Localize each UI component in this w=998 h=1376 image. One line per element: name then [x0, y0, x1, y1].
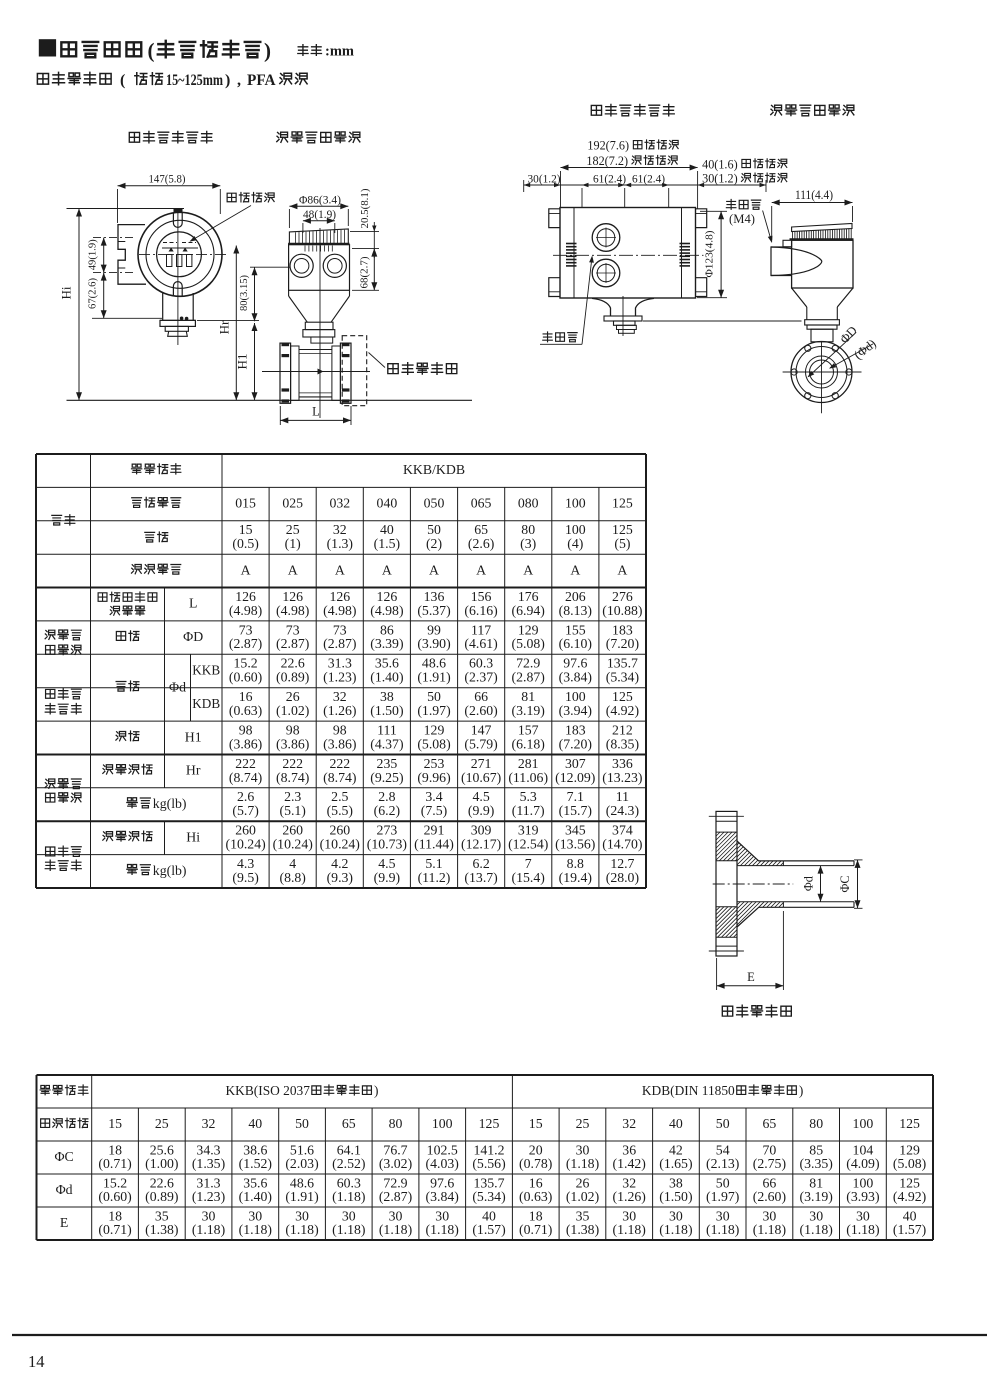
- svg-text:(9.96): (9.96): [417, 770, 450, 786]
- svg-text:61(2.4): 61(2.4): [632, 174, 665, 186]
- svg-text:(0.60): (0.60): [229, 670, 262, 686]
- svg-text:(3.86): (3.86): [276, 736, 309, 752]
- svg-text:(1.50): (1.50): [659, 1189, 692, 1205]
- svg-text:40(1.6): 40(1.6): [702, 157, 738, 171]
- svg-text:136: 136: [424, 589, 445, 604]
- svg-text:(1.26): (1.26): [323, 703, 356, 719]
- svg-text:(4.92): (4.92): [606, 703, 639, 719]
- svg-text:125: 125: [899, 1175, 920, 1190]
- svg-text:(8.74): (8.74): [323, 770, 356, 786]
- svg-text:(0.60): (0.60): [98, 1189, 131, 1205]
- svg-text:73: 73: [286, 622, 300, 637]
- svg-text:4: 4: [289, 856, 296, 871]
- svg-text:(11.06): (11.06): [508, 770, 548, 786]
- svg-text:100: 100: [565, 496, 586, 511]
- svg-text:(1.65): (1.65): [659, 1156, 692, 1172]
- svg-text:(10.67): (10.67): [461, 770, 501, 786]
- svg-text:(1.00): (1.00): [145, 1156, 178, 1172]
- svg-text:222: 222: [329, 756, 350, 771]
- svg-text:(7.5): (7.5): [421, 803, 447, 819]
- svg-text:30: 30: [202, 1208, 216, 1223]
- svg-text:22.6: 22.6: [281, 656, 305, 671]
- svg-text:129: 129: [518, 622, 539, 637]
- svg-text:Hi: Hi: [59, 286, 74, 299]
- svg-text:30: 30: [622, 1208, 636, 1223]
- svg-text:32: 32: [333, 522, 347, 537]
- svg-text:(19.4): (19.4): [559, 870, 592, 886]
- svg-text:97.6: 97.6: [563, 656, 587, 671]
- svg-text:L: L: [312, 405, 320, 419]
- svg-text:(24.3): (24.3): [606, 803, 639, 819]
- svg-text:54: 54: [716, 1142, 730, 1157]
- svg-text:(5.79): (5.79): [464, 736, 497, 752]
- svg-text:25.6: 25.6: [150, 1142, 174, 1157]
- svg-text:65: 65: [474, 522, 488, 537]
- svg-text:102.5: 102.5: [427, 1142, 458, 1157]
- svg-text:18: 18: [108, 1142, 122, 1157]
- svg-text:(13.7): (13.7): [464, 870, 497, 886]
- svg-text:20.5(8.1): 20.5(8.1): [359, 188, 371, 228]
- svg-text:99: 99: [427, 622, 441, 637]
- svg-text:KDB(DIN 11850: KDB(DIN 11850: [642, 1083, 735, 1098]
- svg-text:(4.03): (4.03): [426, 1156, 459, 1172]
- svg-text:60.3: 60.3: [337, 1175, 361, 1190]
- svg-text:15: 15: [108, 1116, 122, 1131]
- svg-text:(3.86): (3.86): [323, 736, 356, 752]
- svg-text:050: 050: [424, 496, 445, 511]
- svg-text:(1.35): (1.35): [192, 1156, 225, 1172]
- svg-text:(0.89): (0.89): [145, 1189, 178, 1205]
- svg-text:(8.8): (8.8): [279, 870, 305, 886]
- svg-text:50: 50: [427, 522, 441, 537]
- svg-text:Φ86(3.4): Φ86(3.4): [299, 193, 341, 207]
- svg-text:(1.02): (1.02): [566, 1189, 599, 1205]
- svg-text:A: A: [241, 562, 251, 577]
- svg-text:(10.24): (10.24): [320, 837, 360, 853]
- svg-text:73: 73: [239, 622, 253, 637]
- svg-text:155: 155: [565, 622, 586, 637]
- svg-text:(9.5): (9.5): [232, 870, 258, 886]
- svg-text:125: 125: [612, 689, 633, 704]
- svg-text:15.2: 15.2: [234, 656, 258, 671]
- svg-text:98: 98: [239, 723, 253, 738]
- svg-text:80: 80: [809, 1116, 823, 1131]
- svg-text:111(4.4): 111(4.4): [795, 188, 833, 202]
- svg-text:(5.1): (5.1): [279, 803, 305, 819]
- svg-text:(10.24): (10.24): [273, 837, 313, 853]
- svg-text:(4.61): (4.61): [464, 636, 497, 652]
- svg-text:ΦC: ΦC: [54, 1149, 73, 1164]
- svg-text:125: 125: [612, 522, 633, 537]
- svg-text:4.2: 4.2: [331, 856, 348, 871]
- svg-text:(5.08): (5.08): [893, 1156, 926, 1172]
- svg-text:48.6: 48.6: [290, 1175, 314, 1190]
- svg-text:(1.57): (1.57): [472, 1222, 505, 1238]
- svg-text:50: 50: [295, 1116, 309, 1131]
- svg-text:32: 32: [622, 1175, 636, 1190]
- svg-text:30(1.2): 30(1.2): [702, 172, 738, 186]
- svg-text:(1.3): (1.3): [327, 536, 353, 552]
- svg-text:260: 260: [235, 823, 256, 838]
- svg-text:KDB: KDB: [192, 696, 220, 711]
- svg-text:025: 025: [282, 496, 303, 511]
- svg-text:(0.71): (0.71): [519, 1222, 552, 1238]
- svg-text:(5.7): (5.7): [232, 803, 258, 819]
- svg-text:(0.78): (0.78): [519, 1156, 552, 1172]
- svg-text:31.3: 31.3: [196, 1175, 220, 1190]
- svg-text:2.6: 2.6: [237, 789, 254, 804]
- svg-text:2.5: 2.5: [331, 789, 348, 804]
- svg-text:(2.37): (2.37): [464, 670, 497, 686]
- svg-text:A: A: [617, 562, 627, 577]
- svg-text:A: A: [382, 562, 392, 577]
- svg-text:147: 147: [471, 723, 492, 738]
- svg-text:Hr: Hr: [217, 320, 232, 334]
- svg-text:): ): [264, 39, 271, 63]
- svg-text:126: 126: [235, 589, 256, 604]
- svg-text:A: A: [570, 562, 580, 577]
- svg-text:80(3.15): 80(3.15): [238, 275, 250, 311]
- svg-text:(12.09): (12.09): [555, 770, 595, 786]
- svg-text:5.3: 5.3: [520, 789, 537, 804]
- svg-text:100: 100: [853, 1175, 874, 1190]
- svg-text:98: 98: [286, 723, 300, 738]
- svg-text:kg(lb): kg(lb): [153, 863, 187, 879]
- svg-text:(8.35): (8.35): [606, 736, 639, 752]
- svg-text:182(7.2): 182(7.2): [586, 154, 628, 168]
- svg-text:36: 36: [622, 1142, 636, 1157]
- svg-text:176: 176: [518, 589, 539, 604]
- svg-text:32: 32: [622, 1116, 636, 1131]
- svg-text:(2.03): (2.03): [285, 1156, 318, 1172]
- svg-text:212: 212: [612, 723, 633, 738]
- svg-text:111: 111: [377, 723, 397, 738]
- svg-text:(1.38): (1.38): [566, 1222, 599, 1238]
- svg-text:Φd: Φd: [801, 876, 815, 891]
- svg-text:183: 183: [565, 723, 586, 738]
- svg-text:(5.5): (5.5): [327, 803, 353, 819]
- svg-text:14: 14: [28, 1352, 45, 1371]
- svg-text:11: 11: [616, 789, 629, 804]
- svg-text:(4.98): (4.98): [229, 603, 262, 619]
- svg-text:A: A: [476, 562, 486, 577]
- svg-text:(1.18): (1.18): [659, 1222, 692, 1238]
- svg-text:(1.18): (1.18): [800, 1222, 833, 1238]
- svg-text:260: 260: [329, 823, 350, 838]
- svg-text:48.6: 48.6: [422, 656, 446, 671]
- svg-text:(0.71): (0.71): [98, 1222, 131, 1238]
- svg-text:319: 319: [518, 823, 539, 838]
- svg-text:65: 65: [763, 1116, 777, 1131]
- svg-text:81: 81: [521, 689, 535, 704]
- svg-text:(1.18): (1.18): [753, 1222, 786, 1238]
- svg-text:(6.18): (6.18): [512, 736, 545, 752]
- svg-text:(6.2): (6.2): [374, 803, 400, 819]
- svg-text:30: 30: [763, 1208, 777, 1223]
- svg-text:(10.88): (10.88): [602, 603, 642, 619]
- svg-text:4.5: 4.5: [378, 856, 395, 871]
- svg-text:72.9: 72.9: [516, 656, 540, 671]
- svg-text:(1.40): (1.40): [239, 1189, 272, 1205]
- svg-text:135.7: 135.7: [473, 1175, 504, 1190]
- svg-text:(4.98): (4.98): [276, 603, 309, 619]
- svg-text:(14.70): (14.70): [602, 837, 642, 853]
- svg-text:(10.24): (10.24): [225, 837, 265, 853]
- svg-text:72.9: 72.9: [383, 1175, 407, 1190]
- svg-text:100: 100: [432, 1116, 453, 1131]
- svg-text:281: 281: [518, 756, 539, 771]
- svg-text:(1.91): (1.91): [417, 670, 450, 686]
- svg-text:68(2.7): 68(2.7): [359, 256, 371, 288]
- svg-text:64.1: 64.1: [337, 1142, 361, 1157]
- svg-text:(1.50): (1.50): [370, 703, 403, 719]
- svg-text:(3.19): (3.19): [800, 1189, 833, 1205]
- svg-text:40: 40: [903, 1208, 917, 1223]
- svg-text:25: 25: [576, 1116, 590, 1131]
- svg-text:98: 98: [333, 723, 347, 738]
- svg-text:30: 30: [248, 1208, 262, 1223]
- svg-text:125: 125: [612, 496, 633, 511]
- svg-text:(9.3): (9.3): [327, 870, 353, 886]
- svg-text:222: 222: [282, 756, 303, 771]
- svg-text:ΦC: ΦC: [838, 875, 852, 892]
- svg-text:(2.87): (2.87): [323, 636, 356, 652]
- svg-text:(3.19): (3.19): [512, 703, 545, 719]
- svg-text:125: 125: [479, 1116, 500, 1131]
- svg-text:374: 374: [612, 823, 633, 838]
- svg-text:(13.56): (13.56): [555, 837, 595, 853]
- svg-text:(0.5): (0.5): [232, 536, 258, 552]
- svg-text:76.7: 76.7: [383, 1142, 407, 1157]
- svg-text:): ): [225, 72, 230, 89]
- svg-text:(5.34): (5.34): [472, 1189, 505, 1205]
- svg-text:kg(lb): kg(lb): [153, 796, 187, 812]
- svg-text:38.6: 38.6: [243, 1142, 267, 1157]
- svg-text:345: 345: [565, 823, 586, 838]
- svg-text:129: 129: [899, 1142, 920, 1157]
- svg-text:(3): (3): [520, 536, 536, 552]
- svg-text:(3.84): (3.84): [559, 670, 592, 686]
- svg-text:81: 81: [809, 1175, 823, 1190]
- svg-text:): ): [799, 1083, 803, 1098]
- svg-text:276: 276: [612, 589, 633, 604]
- svg-text:30: 30: [435, 1208, 449, 1223]
- svg-text:(1.18): (1.18): [379, 1222, 412, 1238]
- svg-text:(0.63): (0.63): [229, 703, 262, 719]
- svg-text:(2.6): (2.6): [468, 536, 494, 552]
- svg-text:4.5: 4.5: [472, 789, 489, 804]
- svg-text:25: 25: [155, 1116, 169, 1131]
- svg-text:30: 30: [809, 1208, 823, 1223]
- svg-text:42: 42: [669, 1142, 683, 1157]
- svg-text:(5.08): (5.08): [417, 736, 450, 752]
- svg-text:KKB: KKB: [192, 663, 220, 678]
- svg-text:(2.60): (2.60): [753, 1189, 786, 1205]
- svg-text:(4.98): (4.98): [323, 603, 356, 619]
- svg-text:(2.13): (2.13): [706, 1156, 739, 1172]
- svg-text:080: 080: [518, 496, 539, 511]
- svg-text:(7.20): (7.20): [559, 736, 592, 752]
- svg-text:18: 18: [108, 1208, 122, 1223]
- svg-text:(1.02): (1.02): [276, 703, 309, 719]
- svg-text:129: 129: [424, 723, 445, 738]
- svg-text:3.4: 3.4: [425, 789, 442, 804]
- svg-text:38: 38: [669, 1175, 683, 1190]
- svg-text:126: 126: [377, 589, 398, 604]
- svg-text:(5.37): (5.37): [417, 603, 450, 619]
- svg-text:6.2: 6.2: [472, 856, 489, 871]
- svg-text:291: 291: [424, 823, 445, 838]
- svg-text:(6.16): (6.16): [464, 603, 497, 619]
- svg-text:E: E: [60, 1215, 68, 1230]
- svg-text:): ): [374, 1083, 378, 1098]
- svg-text:(4.09): (4.09): [846, 1156, 879, 1172]
- svg-text:PFA: PFA: [247, 72, 276, 89]
- svg-text:38: 38: [380, 689, 394, 704]
- svg-text:50: 50: [427, 689, 441, 704]
- svg-text:20: 20: [529, 1142, 543, 1157]
- svg-text:25: 25: [286, 522, 300, 537]
- svg-text:(3.02): (3.02): [379, 1156, 412, 1172]
- svg-text:30: 30: [576, 1142, 590, 1157]
- svg-text:A: A: [335, 562, 345, 577]
- svg-text:5.1: 5.1: [425, 856, 442, 871]
- svg-text:15~125mm: 15~125mm: [166, 72, 223, 89]
- svg-text:(6.94): (6.94): [512, 603, 545, 619]
- svg-text:66: 66: [763, 1175, 777, 1190]
- svg-text:(9.9): (9.9): [468, 803, 494, 819]
- svg-text:(: (: [120, 72, 125, 89]
- svg-text:307: 307: [565, 756, 586, 771]
- svg-text:(5): (5): [614, 536, 630, 552]
- svg-text:(0.63): (0.63): [519, 1189, 552, 1205]
- svg-text:60.3: 60.3: [469, 656, 493, 671]
- svg-text:30: 30: [669, 1208, 683, 1223]
- svg-text:(2.87): (2.87): [512, 670, 545, 686]
- svg-text:(6.10): (6.10): [559, 636, 592, 652]
- svg-text:(5.34): (5.34): [606, 670, 639, 686]
- svg-text:100: 100: [565, 522, 586, 537]
- svg-text:H1: H1: [185, 729, 202, 744]
- svg-text:(4.98): (4.98): [370, 603, 403, 619]
- svg-text:Φd: Φd: [169, 679, 186, 694]
- svg-text:(1.18): (1.18): [613, 1222, 646, 1238]
- svg-text:70: 70: [763, 1142, 777, 1157]
- svg-text:(2.87): (2.87): [229, 636, 262, 652]
- svg-text:(1.18): (1.18): [192, 1222, 225, 1238]
- svg-text:(3.84): (3.84): [426, 1189, 459, 1205]
- svg-text:156: 156: [471, 589, 492, 604]
- svg-text:35.6: 35.6: [243, 1175, 267, 1190]
- svg-text:7.1: 7.1: [567, 789, 584, 804]
- svg-text:,: ,: [237, 72, 241, 89]
- svg-text:(8.13): (8.13): [559, 603, 592, 619]
- svg-text:65: 65: [342, 1116, 356, 1131]
- svg-text:(1.38): (1.38): [145, 1222, 178, 1238]
- svg-text:(1.5): (1.5): [374, 536, 400, 552]
- svg-text:16: 16: [239, 689, 253, 704]
- svg-text:H1: H1: [235, 354, 250, 370]
- svg-text:(2.87): (2.87): [379, 1189, 412, 1205]
- svg-text:80: 80: [389, 1116, 403, 1131]
- svg-text:(0.89): (0.89): [276, 670, 309, 686]
- svg-text:(3.86): (3.86): [229, 736, 262, 752]
- svg-text:22.6: 22.6: [150, 1175, 174, 1190]
- svg-text:(12.54): (12.54): [508, 837, 548, 853]
- svg-text:235: 235: [377, 756, 398, 771]
- svg-text:7: 7: [525, 856, 532, 871]
- svg-text:(2): (2): [426, 536, 442, 552]
- svg-text:(4.92): (4.92): [893, 1189, 926, 1205]
- svg-text:34.3: 34.3: [196, 1142, 220, 1157]
- svg-text:(1.18): (1.18): [332, 1222, 365, 1238]
- svg-text:(: (: [148, 39, 155, 63]
- svg-text:157: 157: [518, 723, 539, 738]
- svg-text:2.8: 2.8: [378, 789, 395, 804]
- svg-text:104: 104: [853, 1142, 874, 1157]
- svg-text:(11.2): (11.2): [418, 870, 451, 886]
- svg-text:(1.40): (1.40): [370, 670, 403, 686]
- svg-text:(5.56): (5.56): [472, 1156, 505, 1172]
- svg-text:50: 50: [716, 1175, 730, 1190]
- svg-text:126: 126: [282, 589, 303, 604]
- svg-text:065: 065: [471, 496, 492, 511]
- svg-text:18: 18: [529, 1208, 543, 1223]
- svg-text:(1.18): (1.18): [285, 1222, 318, 1238]
- svg-text::mm: :mm: [325, 44, 354, 60]
- svg-text:30: 30: [716, 1208, 730, 1223]
- svg-text:100: 100: [565, 689, 586, 704]
- svg-text:(1.97): (1.97): [706, 1189, 739, 1205]
- svg-text:4.3: 4.3: [237, 856, 254, 871]
- svg-text:30: 30: [389, 1208, 403, 1223]
- svg-text:135.7: 135.7: [607, 656, 638, 671]
- svg-text:(1.18): (1.18): [332, 1189, 365, 1205]
- svg-text:35.6: 35.6: [375, 656, 399, 671]
- svg-text:(3.94): (3.94): [559, 703, 592, 719]
- svg-text:(10.73): (10.73): [367, 837, 407, 853]
- svg-text:(4.37): (4.37): [370, 736, 403, 752]
- svg-text:253: 253: [424, 756, 445, 771]
- svg-text:15.2: 15.2: [103, 1175, 127, 1190]
- svg-text:(9.9): (9.9): [374, 870, 400, 886]
- svg-text:40: 40: [669, 1116, 683, 1131]
- svg-text:(1.18): (1.18): [706, 1222, 739, 1238]
- svg-text:32: 32: [333, 689, 347, 704]
- svg-text:(0.71): (0.71): [98, 1156, 131, 1172]
- svg-text:97.6: 97.6: [430, 1175, 454, 1190]
- svg-text:(1.18): (1.18): [846, 1222, 879, 1238]
- svg-text:(1.42): (1.42): [613, 1156, 646, 1172]
- svg-text:(3.90): (3.90): [417, 636, 450, 652]
- svg-text:40: 40: [248, 1116, 262, 1131]
- svg-text:(28.0): (28.0): [606, 870, 639, 886]
- svg-text:147(5.8): 147(5.8): [149, 171, 186, 185]
- svg-text:(3.93): (3.93): [846, 1189, 879, 1205]
- svg-text:A: A: [288, 562, 298, 577]
- svg-text:Φd: Φd: [56, 1182, 73, 1197]
- svg-text:(1.97): (1.97): [417, 703, 450, 719]
- svg-text:(M4): (M4): [729, 212, 755, 226]
- svg-text:86: 86: [380, 622, 394, 637]
- svg-text:032: 032: [329, 496, 350, 511]
- svg-text:26: 26: [576, 1175, 590, 1190]
- svg-text:015: 015: [235, 496, 256, 511]
- svg-text:(15.4): (15.4): [512, 870, 545, 886]
- svg-text:(1.52): (1.52): [239, 1156, 272, 1172]
- svg-text:30: 30: [295, 1208, 309, 1223]
- svg-text:206: 206: [565, 589, 586, 604]
